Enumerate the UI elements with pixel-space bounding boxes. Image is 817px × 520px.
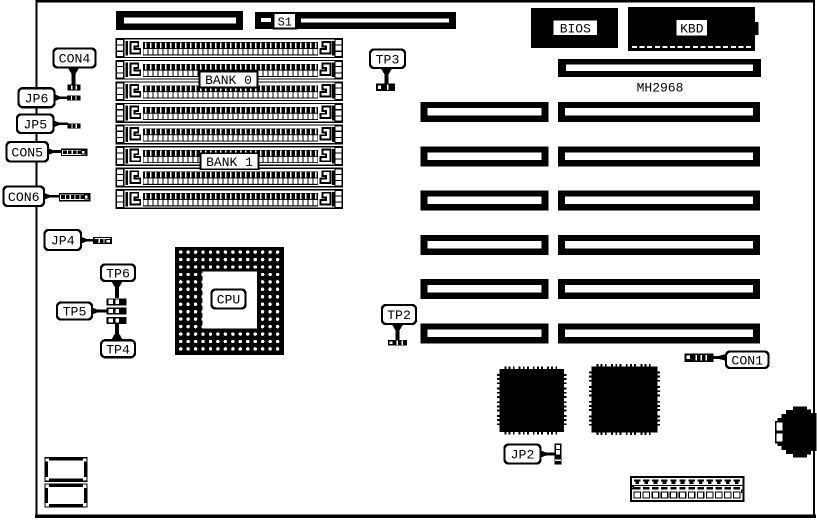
svg-text:JP5: JP5 [23, 117, 47, 132]
svg-text:JP6: JP6 [25, 91, 49, 106]
svg-text:CON5: CON5 [11, 145, 43, 160]
svg-text:S1: S1 [278, 15, 292, 29]
svg-text:BANK 1: BANK 1 [206, 155, 253, 170]
svg-text:TP4: TP4 [106, 342, 130, 357]
svg-text:KBD: KBD [680, 21, 704, 36]
svg-text:BIOS: BIOS [560, 21, 591, 36]
svg-text:TP2: TP2 [387, 308, 411, 323]
svg-text:JP2: JP2 [511, 448, 535, 463]
svg-text:MH2968: MH2968 [637, 81, 684, 96]
svg-text:JP4: JP4 [51, 234, 75, 249]
svg-text:CON1: CON1 [731, 353, 763, 368]
svg-text:CPU: CPU [217, 293, 240, 308]
svg-text:TP6: TP6 [106, 266, 130, 281]
svg-text:CON6: CON6 [8, 190, 40, 205]
svg-text:BANK 0: BANK 0 [205, 73, 252, 88]
svg-text:TP5: TP5 [63, 305, 87, 320]
svg-text:CON4: CON4 [59, 52, 91, 67]
svg-text:TP3: TP3 [376, 52, 400, 67]
